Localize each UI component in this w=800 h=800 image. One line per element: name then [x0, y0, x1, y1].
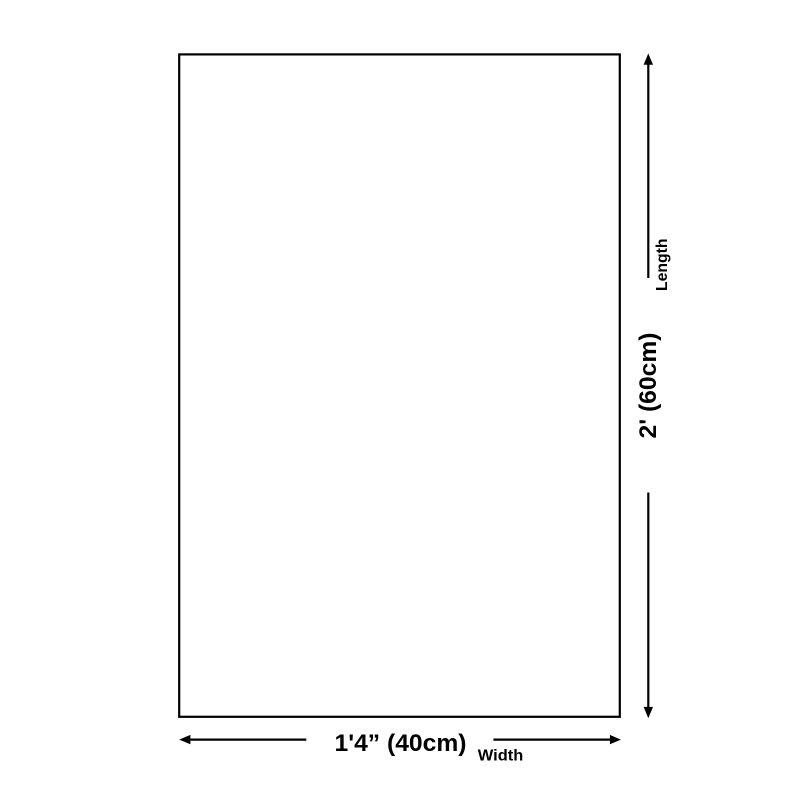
svg-text:1'4” (40cm): 1'4” (40cm) [335, 730, 467, 757]
svg-text:Width: Width [478, 748, 524, 765]
svg-text:2' (60cm): 2' (60cm) [635, 333, 662, 439]
svg-text:Length: Length [654, 239, 671, 292]
